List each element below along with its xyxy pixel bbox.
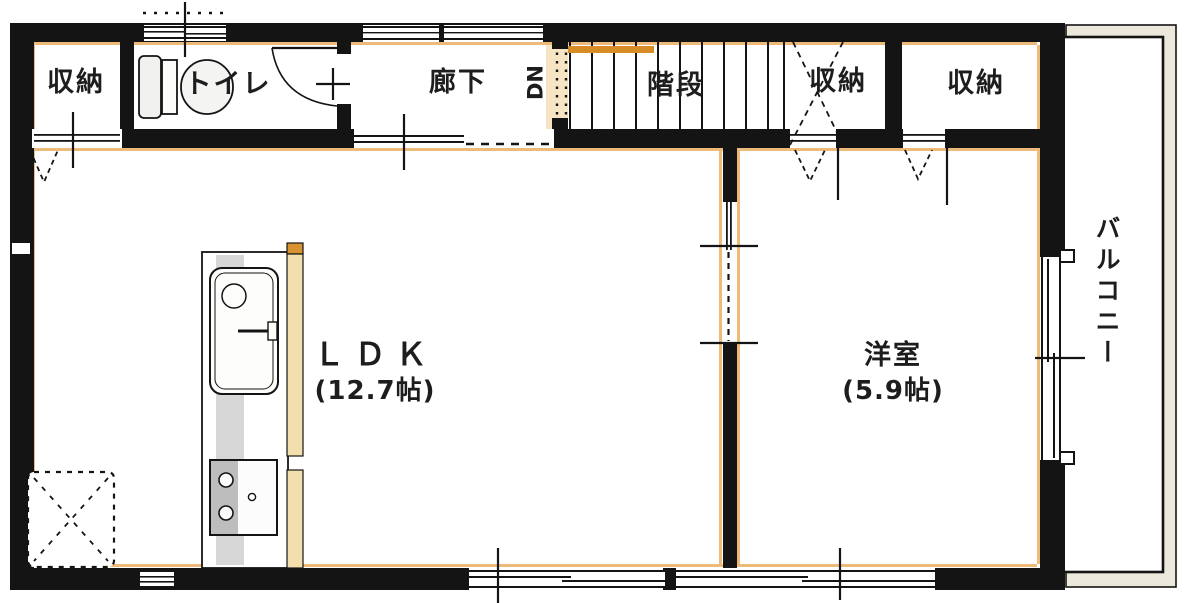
left-wall-notch: [12, 243, 30, 254]
floor-plan: 収納 トイレ 廊下 DN 階段 収納 収納 ＬＤＫ (12.7帖) 洋室 (5.…: [0, 0, 1185, 603]
room-area-ldk: (12.7帖): [275, 378, 475, 404]
bottom-wall-vent: [140, 572, 174, 586]
toilet-door-arc: [272, 48, 337, 106]
western-room-bottom-window: [671, 568, 940, 590]
room-label-stairs: 階段: [626, 72, 726, 99]
stair-handrail: [568, 46, 654, 53]
closet-c-opening: [903, 129, 945, 148]
refrigerator-space: [28, 472, 114, 567]
kitchen-sink-icon: [210, 268, 278, 394]
counter-edge-strip: [287, 243, 303, 568]
folding-door-marks: [30, 150, 932, 182]
room-label-ldk: ＬＤＫ: [275, 340, 475, 371]
room-label-balcony: バルコニー: [1094, 215, 1119, 370]
ldk-bottom-window: [464, 568, 670, 590]
partition-sliding-door: [726, 202, 732, 341]
closet-a-opening: [32, 129, 122, 148]
room-label-toilet: トイレ: [178, 71, 278, 98]
hallway-window: [360, 25, 546, 42]
door-openings: [32, 129, 945, 341]
stove-icon: [210, 460, 277, 535]
room-label-western: 洋室: [793, 342, 993, 369]
stair-landing-strip: [546, 42, 568, 129]
hallway-sliding-door: [354, 129, 552, 148]
room-label-closet-b: 収納: [788, 68, 888, 95]
kitchen-counter: [202, 243, 303, 568]
room-label-closet-a: 収納: [28, 69, 124, 96]
room-label-closet-c: 収納: [926, 70, 1026, 97]
room-area-western: (5.9帖): [793, 378, 993, 404]
stairs-direction-marker: DN: [526, 61, 547, 105]
room-label-hallway: 廊下: [408, 69, 508, 96]
